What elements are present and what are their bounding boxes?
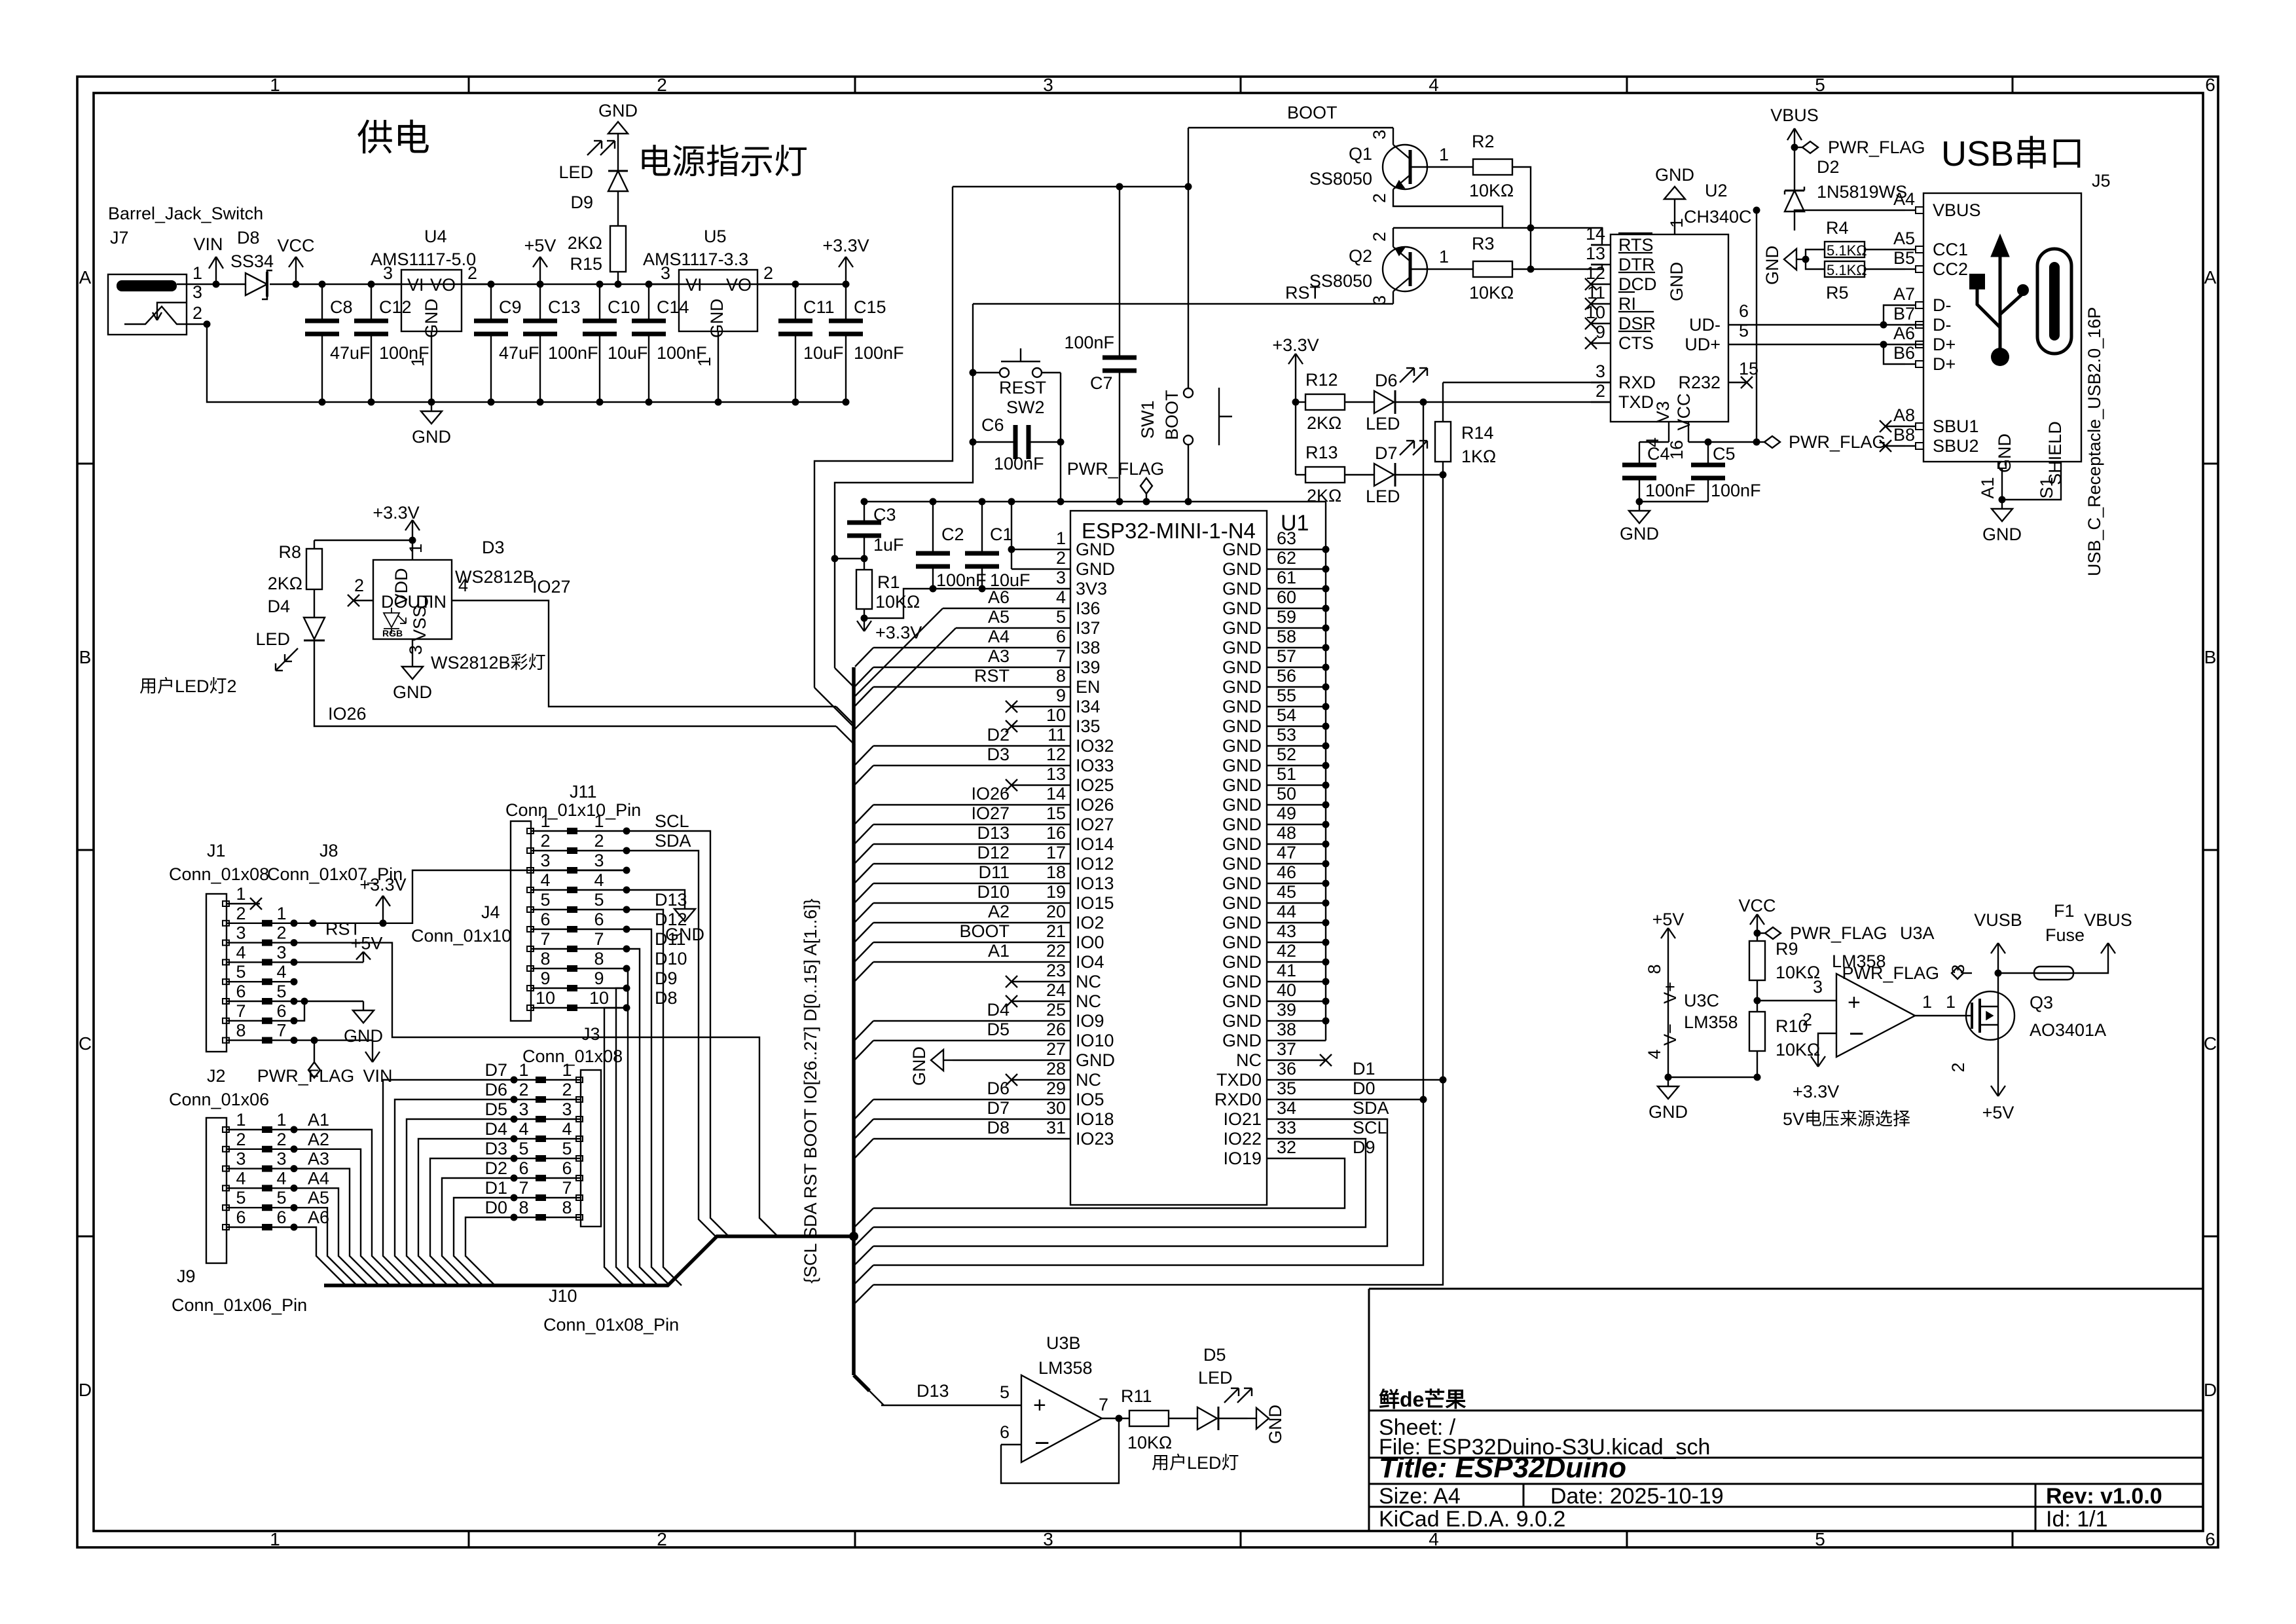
svg-text:7: 7 [519,1178,528,1198]
svg-text:A2: A2 [988,902,1010,921]
svg-text:C8: C8 [330,297,353,317]
svg-text:PWR_FLAG: PWR_FLAG [1790,923,1887,943]
svg-text:PWR_FLAG: PWR_FLAG [1842,963,1939,983]
svg-text:52: 52 [1277,745,1296,764]
svg-text:VI: VI [407,275,424,295]
svg-text:8: 8 [562,1198,572,1217]
svg-text:2: 2 [276,923,286,943]
svg-text:VBUS: VBUS [2084,910,2132,930]
svg-text:R11: R11 [1121,1386,1152,1406]
svg-text:A5: A5 [988,607,1010,627]
svg-text:3: 3 [1595,361,1605,381]
svg-text:31: 31 [1046,1118,1066,1137]
svg-text:SS8050: SS8050 [1309,169,1372,189]
svg-text:2: 2 [192,303,202,323]
svg-text:+3.3V: +3.3V [822,236,869,255]
svg-text:J11: J11 [570,782,597,802]
svg-text:J10: J10 [549,1286,577,1306]
svg-text:GND: GND [1222,579,1262,599]
svg-text:D13: D13 [655,890,687,910]
svg-text:VBUS: VBUS [1933,200,1981,220]
svg-text:3: 3 [406,645,426,655]
svg-text:RXD: RXD [1618,373,1656,392]
svg-text:R9: R9 [1776,939,1798,959]
svg-text:2: 2 [467,263,477,283]
svg-text:UD-: UD- [1689,315,1721,335]
svg-text:REST: REST [999,378,1046,397]
svg-text:NC: NC [1076,972,1101,991]
svg-text:62: 62 [1277,548,1296,568]
svg-text:D0: D0 [484,1198,507,1217]
svg-text:−: − [1849,1020,1864,1048]
svg-text:+: + [1848,990,1861,1015]
svg-text:CH340C: CH340C [1684,207,1752,227]
svg-text:V−: V− [1660,1024,1680,1046]
svg-text:7: 7 [1099,1395,1108,1414]
svg-text:SDA: SDA [1353,1098,1389,1118]
svg-text:1: 1 [236,884,246,904]
svg-text:53: 53 [1277,725,1296,745]
svg-text:A1: A1 [988,941,1010,961]
svg-text:51: 51 [1277,764,1296,784]
svg-text:+3.3V: +3.3V [373,503,419,523]
svg-text:Date: 2025-10-19: Date: 2025-10-19 [1550,1484,1724,1509]
svg-text:6: 6 [1739,301,1749,321]
svg-text:Q2: Q2 [1349,246,1372,266]
svg-text:R15: R15 [570,254,602,274]
svg-text:47uF: 47uF [499,343,539,363]
svg-text:1uF: 1uF [873,535,904,555]
svg-text:1: 1 [1056,528,1066,548]
svg-text:GND: GND [665,925,704,944]
svg-text:Fuse: Fuse [2045,925,2085,945]
svg-text:D5: D5 [987,1020,1010,1039]
svg-text:B: B [2204,647,2217,667]
svg-text:GND: GND [1222,874,1262,893]
svg-text:LM358: LM358 [1684,1012,1738,1032]
svg-text:J1: J1 [207,841,226,860]
svg-text:VCC: VCC [277,236,314,255]
svg-text:6: 6 [519,1158,528,1178]
svg-text:30: 30 [1046,1098,1066,1118]
svg-text:6: 6 [2205,1529,2215,1549]
svg-text:4: 4 [276,1168,286,1188]
svg-text:35: 35 [1277,1079,1296,1098]
svg-text:2: 2 [763,263,773,283]
svg-text:4: 4 [276,962,286,982]
svg-text:10KΩ: 10KΩ [1776,1040,1820,1060]
svg-text:7: 7 [276,1021,286,1041]
svg-text:4: 4 [1429,1529,1439,1549]
svg-text:VUSB: VUSB [1974,910,2022,930]
svg-text:IO26: IO26 [1076,795,1114,815]
svg-text:Size: A4: Size: A4 [1379,1484,1461,1509]
svg-text:2: 2 [1370,232,1389,242]
svg-text:8: 8 [236,1021,246,1041]
svg-text:GND: GND [1655,165,1694,185]
svg-text:GND: GND [1222,952,1262,972]
svg-text:5: 5 [236,962,246,982]
svg-text:GND: GND [1222,991,1262,1011]
svg-text:2: 2 [519,1080,528,1099]
svg-text:GND: GND [1222,697,1262,716]
svg-text:1: 1 [519,1060,528,1080]
svg-text:LED: LED [1198,1368,1233,1388]
svg-text:D6: D6 [987,1079,1010,1098]
svg-text:C4: C4 [1647,444,1670,464]
svg-text:A3: A3 [308,1149,329,1169]
svg-text:D: D [2204,1380,2217,1400]
svg-text:2: 2 [276,1130,286,1149]
svg-text:10: 10 [536,988,555,1008]
svg-text:43: 43 [1277,921,1296,941]
svg-text:10: 10 [1046,705,1066,725]
svg-text:6: 6 [1000,1422,1010,1442]
svg-text:PWR_FLAG: PWR_FLAG [1789,432,1886,452]
svg-text:C6: C6 [981,415,1004,435]
svg-text:GND: GND [1222,932,1262,952]
svg-text:D+: D+ [1933,354,1956,374]
svg-text:33: 33 [1277,1118,1296,1137]
svg-text:2: 2 [1948,1062,1968,1072]
svg-text:46: 46 [1277,862,1296,882]
svg-text:{SCL SDA RST BOOT IO[26..27] D: {SCL SDA RST BOOT IO[26..27] D[0..15] A[… [801,898,820,1283]
svg-text:IO21: IO21 [1223,1109,1262,1129]
svg-text:5: 5 [1056,607,1066,627]
svg-text:SW2: SW2 [1006,397,1045,417]
svg-text:IO27: IO27 [532,577,571,597]
svg-text:7: 7 [594,929,604,949]
svg-text:1N5819WS: 1N5819WS [1817,182,1907,202]
svg-text:R12: R12 [1305,370,1338,390]
svg-text:1: 1 [1439,247,1449,267]
svg-text:A7: A7 [1893,284,1915,304]
svg-text:3: 3 [276,942,286,962]
svg-text:55: 55 [1277,686,1296,705]
svg-text:CC2: CC2 [1933,259,1968,279]
svg-text:GND: GND [1222,756,1262,775]
svg-text:16: 16 [1046,823,1066,843]
svg-text:VCC: VCC [1738,896,1776,915]
svg-text:2: 2 [236,904,246,923]
svg-text:GND: GND [1222,1031,1262,1050]
svg-text:U3B: U3B [1046,1333,1081,1353]
svg-text:VBUS: VBUS [1770,105,1819,125]
svg-text:41: 41 [1277,961,1296,980]
svg-text:+5V: +5V [1652,910,1685,929]
svg-text:GND: GND [909,1046,929,1086]
svg-text:GND: GND [1222,540,1262,559]
svg-text:5: 5 [276,1188,286,1208]
svg-text:+3.3V: +3.3V [1272,335,1319,355]
svg-text:D-: D- [1933,315,1952,335]
svg-text:3: 3 [594,851,604,870]
svg-text:5: 5 [519,1139,528,1158]
svg-text:1: 1 [1946,992,1956,1012]
svg-text:100nF: 100nF [1645,481,1696,500]
svg-text:C15: C15 [854,297,886,317]
svg-text:2: 2 [657,75,667,95]
svg-text:GND: GND [1222,736,1262,756]
svg-text:GND: GND [344,1026,383,1046]
svg-text:USB_C_Receptacle_USB2.0_16P: USB_C_Receptacle_USB2.0_16P [2085,307,2104,576]
svg-text:D4: D4 [987,1000,1010,1020]
svg-text:DCD: DCD [1618,274,1657,294]
svg-text:3: 3 [1043,1529,1053,1549]
svg-text:3: 3 [383,263,393,283]
svg-text:B7: B7 [1893,304,1915,323]
svg-text:D6: D6 [484,1080,507,1099]
svg-text:鲜de芒果: 鲜de芒果 [1379,1388,1466,1411]
svg-text:D3: D3 [987,745,1010,764]
svg-text:D+: D+ [1933,335,1956,354]
svg-text:38: 38 [1277,1020,1296,1039]
svg-text:8: 8 [519,1198,528,1217]
svg-text:C5: C5 [1713,444,1736,464]
svg-text:IO19: IO19 [1223,1149,1262,1168]
svg-text:J5: J5 [2092,171,2111,191]
svg-text:GND: GND [1076,559,1115,579]
svg-text:8: 8 [1056,666,1066,686]
svg-text:4: 4 [1429,75,1439,95]
svg-text:D2: D2 [484,1158,507,1178]
svg-text:60: 60 [1277,587,1296,607]
svg-text:4: 4 [1645,1049,1664,1059]
svg-text:D6: D6 [1375,371,1398,390]
svg-text:13: 13 [1046,764,1066,784]
svg-text:23: 23 [1046,961,1066,980]
svg-text:2KΩ: 2KΩ [1307,486,1341,506]
svg-text:28: 28 [1046,1059,1066,1079]
svg-text:J4: J4 [481,902,500,922]
svg-text:7: 7 [562,1178,572,1198]
svg-text:29: 29 [1046,1079,1066,1098]
svg-text:SBU1: SBU1 [1933,416,1979,436]
svg-text:6: 6 [562,1158,572,1178]
svg-text:I35: I35 [1076,716,1101,736]
svg-text:50: 50 [1277,784,1296,803]
svg-text:D4: D4 [484,1119,507,1139]
svg-text:2KΩ: 2KΩ [568,233,602,253]
svg-text:VO: VO [726,275,752,295]
svg-text:SW1: SW1 [1138,400,1157,439]
svg-text:A5: A5 [308,1188,329,1208]
svg-text:SHIELD: SHIELD [2045,421,2065,485]
svg-text:USB串口: USB串口 [1941,134,2085,174]
svg-text:A1: A1 [308,1110,329,1130]
svg-text:SBU2: SBU2 [1933,436,1979,456]
svg-text:1: 1 [594,811,604,831]
svg-text:1: 1 [1922,992,1932,1012]
svg-text:57: 57 [1277,646,1296,666]
svg-text:22: 22 [1046,941,1066,961]
svg-text:IO23: IO23 [1076,1129,1114,1149]
svg-text:C12: C12 [379,297,412,317]
svg-text:Title: ESP32Duino: Title: ESP32Duino [1379,1452,1626,1484]
svg-text:20: 20 [1046,902,1066,921]
svg-text:R5: R5 [1826,283,1849,303]
svg-text:R2: R2 [1472,132,1495,151]
svg-text:U3A: U3A [1900,923,1935,943]
svg-text:F1: F1 [2054,901,2075,921]
svg-text:B: B [79,647,92,667]
svg-text:EN: EN [1076,677,1101,697]
svg-text:D1: D1 [1353,1059,1376,1079]
svg-text:DSR: DSR [1618,314,1656,333]
svg-text:IO4: IO4 [1076,952,1104,972]
svg-text:D5: D5 [1203,1345,1226,1365]
svg-text:D9: D9 [570,193,593,212]
svg-text:Barrel_Jack_Switch: Barrel_Jack_Switch [108,204,263,223]
svg-text:5: 5 [1000,1382,1010,1402]
svg-text:A2: A2 [308,1130,329,1149]
svg-text:7: 7 [236,1001,246,1021]
svg-text:J8: J8 [319,841,338,860]
svg-text:1: 1 [406,544,426,553]
svg-text:34: 34 [1277,1098,1296,1118]
svg-text:7: 7 [1056,646,1066,666]
svg-text:RXD0: RXD0 [1214,1090,1262,1109]
svg-text:RST: RST [1285,283,1321,303]
svg-text:8: 8 [540,949,550,969]
svg-text:10KΩ: 10KΩ [875,592,920,612]
svg-text:10: 10 [589,988,609,1008]
svg-text:D9: D9 [655,969,678,988]
svg-text:10uF: 10uF [803,343,844,363]
svg-text:9: 9 [540,969,550,988]
svg-text:2: 2 [1802,1010,1812,1029]
svg-text:6: 6 [1056,627,1066,646]
svg-text:SDA: SDA [655,831,691,851]
svg-text:100nF: 100nF [936,570,987,590]
svg-text:C: C [79,1033,92,1054]
svg-text:Id: 1/1: Id: 1/1 [2046,1507,2108,1532]
svg-text:5.1KΩ: 5.1KΩ [1827,262,1867,278]
svg-text:C11: C11 [803,297,835,317]
svg-text:IO2: IO2 [1076,913,1104,932]
svg-text:D5: D5 [484,1099,507,1119]
svg-text:2: 2 [236,1130,246,1149]
svg-text:D: D [79,1380,92,1400]
svg-text:C9: C9 [499,297,522,317]
svg-text:LM358: LM358 [1038,1358,1093,1378]
svg-text:A4: A4 [988,627,1010,646]
svg-text:D3: D3 [482,538,505,557]
svg-text:Conn_01x06: Conn_01x06 [169,1090,269,1109]
svg-text:GND: GND [1222,972,1262,991]
svg-text:供电: 供电 [357,117,430,158]
svg-text:13: 13 [1586,244,1605,263]
svg-text:10KΩ: 10KΩ [1127,1433,1172,1452]
svg-text:2: 2 [354,576,364,595]
svg-text:61: 61 [1277,568,1296,587]
svg-text:RTS: RTS [1618,235,1654,255]
svg-text:58: 58 [1277,627,1296,646]
svg-text:CTS: CTS [1618,333,1654,353]
svg-text:GND: GND [1222,638,1262,657]
svg-text:B6: B6 [1893,343,1915,363]
svg-text:6: 6 [276,1208,286,1227]
svg-text:GND: GND [1222,893,1262,913]
svg-text:40: 40 [1277,980,1296,1000]
svg-text:6: 6 [594,910,604,929]
svg-text:D12: D12 [977,843,1010,862]
svg-text:GND: GND [707,299,727,338]
svg-text:39: 39 [1277,1000,1296,1020]
svg-text:1: 1 [1667,218,1686,228]
svg-text:3: 3 [1813,977,1823,997]
svg-text:NC: NC [1076,991,1101,1011]
svg-text:5.1KΩ: 5.1KΩ [1827,242,1867,259]
svg-text:5: 5 [562,1139,572,1158]
svg-text:+: + [1033,1393,1046,1418]
svg-text:J3: J3 [581,1024,600,1044]
svg-text:IO22: IO22 [1223,1129,1262,1149]
svg-text:BOOT: BOOT [1162,390,1182,440]
svg-text:GND: GND [1076,540,1115,559]
svg-text:DTR: DTR [1618,255,1655,274]
svg-text:17: 17 [1046,843,1066,862]
svg-text:IO27: IO27 [1076,815,1114,834]
svg-text:54: 54 [1277,705,1296,725]
svg-text:D11: D11 [978,862,1010,882]
svg-text:VI: VI [685,275,702,295]
svg-text:PWR_FLAG: PWR_FLAG [257,1066,355,1086]
svg-text:11: 11 [1048,725,1066,745]
svg-text:100nF: 100nF [1711,481,1761,500]
svg-text:GND: GND [598,101,638,120]
svg-text:+5V: +5V [351,933,383,953]
svg-text:10KΩ: 10KΩ [1469,283,1514,303]
svg-text:12: 12 [1046,745,1066,764]
svg-text:6: 6 [276,1001,286,1021]
svg-text:4: 4 [236,942,246,962]
svg-text:5: 5 [540,890,550,910]
svg-text:100nF: 100nF [1064,333,1114,352]
svg-text:GND: GND [412,427,451,447]
svg-text:WS2812B彩灯: WS2812B彩灯 [431,653,546,673]
svg-text:+3.3V: +3.3V [359,875,406,895]
svg-text:2: 2 [1595,381,1605,401]
svg-text:Q1: Q1 [1349,144,1372,164]
svg-text:A: A [79,267,92,287]
svg-text:4: 4 [236,1168,246,1188]
svg-text:GND: GND [1222,854,1262,874]
svg-text:B8: B8 [1893,425,1915,445]
svg-text:用户LED灯: 用户LED灯 [1152,1453,1239,1473]
svg-text:LED: LED [1366,487,1400,506]
svg-text:3: 3 [1370,130,1389,139]
svg-text:C3: C3 [873,505,896,525]
svg-text:2KΩ: 2KΩ [1307,413,1341,433]
svg-text:C: C [2204,1033,2217,1054]
svg-text:RI: RI [1618,294,1636,314]
svg-text:47: 47 [1277,843,1296,862]
svg-text:+3.3V: +3.3V [875,623,922,642]
svg-text:NC: NC [1076,1070,1101,1090]
svg-text:Conn_01x10_Pin: Conn_01x10_Pin [505,800,641,820]
svg-text:Rev: v1.0.0: Rev: v1.0.0 [2046,1484,2162,1509]
svg-text:4: 4 [540,870,550,890]
svg-text:8: 8 [1645,964,1664,974]
svg-text:IO9: IO9 [1076,1011,1104,1031]
svg-text:VIN: VIN [363,1066,392,1086]
svg-text:6: 6 [236,982,246,1001]
svg-text:LED: LED [1366,414,1400,434]
svg-text:Conn_01x10: Conn_01x10 [411,926,511,946]
svg-text:5: 5 [276,982,286,1001]
svg-text:GND: GND [1076,1050,1115,1070]
